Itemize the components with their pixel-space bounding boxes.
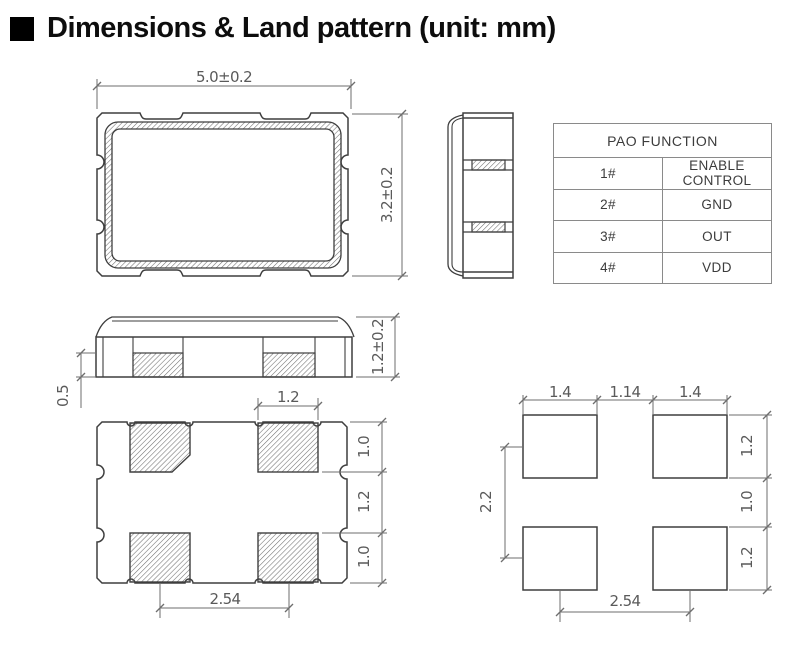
dim-label-land-gap: 1.14 — [610, 383, 641, 401]
dim-label-body-width: 5.0±0.2 — [196, 68, 252, 86]
pin-function: OUT — [663, 221, 772, 253]
dim-label-pad-width: 1.2 — [277, 388, 299, 406]
table-row: 2# GND — [554, 189, 772, 221]
package-top-view — [97, 113, 348, 276]
package-side-view — [448, 113, 513, 278]
package-front-view — [96, 317, 354, 377]
dim-label-land-row-gap: 1.0 — [738, 491, 756, 513]
pin-function: GND — [663, 189, 772, 221]
dimension-drawings: 5.0±0.2 3.2±0.2 — [0, 0, 802, 652]
table-header-row: PAO FUNCTION — [554, 124, 772, 158]
datasheet-page: Dimensions & Land pattern (unit: mm) — [0, 0, 802, 652]
pin-number: 2# — [554, 189, 663, 221]
land-pattern-view — [523, 415, 727, 590]
dim-label-pad-pitch: 2.54 — [210, 590, 241, 608]
pad-function-table: PAO FUNCTION 1# ENABLE CONTROL 2# GND 3#… — [553, 123, 772, 284]
dim-label-land-width-right: 1.4 — [679, 383, 701, 401]
table-row: 3# OUT — [554, 221, 772, 253]
package-bottom-view — [97, 422, 347, 583]
dim-label-land-width-left: 1.4 — [549, 383, 571, 401]
pin-number: 3# — [554, 221, 663, 253]
table-row: 1# ENABLE CONTROL — [554, 158, 772, 190]
dim-label-land-horizontal-pitch: 2.54 — [610, 592, 641, 610]
dim-label-body-height: 3.2±0.2 — [378, 167, 396, 223]
pin-function: ENABLE CONTROL — [663, 158, 772, 190]
pin-number: 4# — [554, 252, 663, 284]
dim-label-row-gap: 1.2 — [355, 491, 373, 513]
dim-label-land-height-top: 1.2 — [738, 435, 756, 457]
pin-function: VDD — [663, 252, 772, 284]
dim-label-land-vertical-pitch: 2.2 — [477, 491, 495, 513]
dim-label-pad-height: 0.5 — [54, 385, 72, 407]
table-header: PAO FUNCTION — [554, 124, 772, 158]
dim-label-land-height-bottom: 1.2 — [738, 547, 756, 569]
pin-number: 1# — [554, 158, 663, 190]
dim-label-row-height-bottom: 1.0 — [355, 546, 373, 568]
dim-label-total-height: 1.2±0.2 — [369, 319, 387, 375]
dim-label-row-height-top: 1.0 — [355, 436, 373, 458]
table-row: 4# VDD — [554, 252, 772, 284]
land-pattern-dimensions — [500, 395, 772, 622]
